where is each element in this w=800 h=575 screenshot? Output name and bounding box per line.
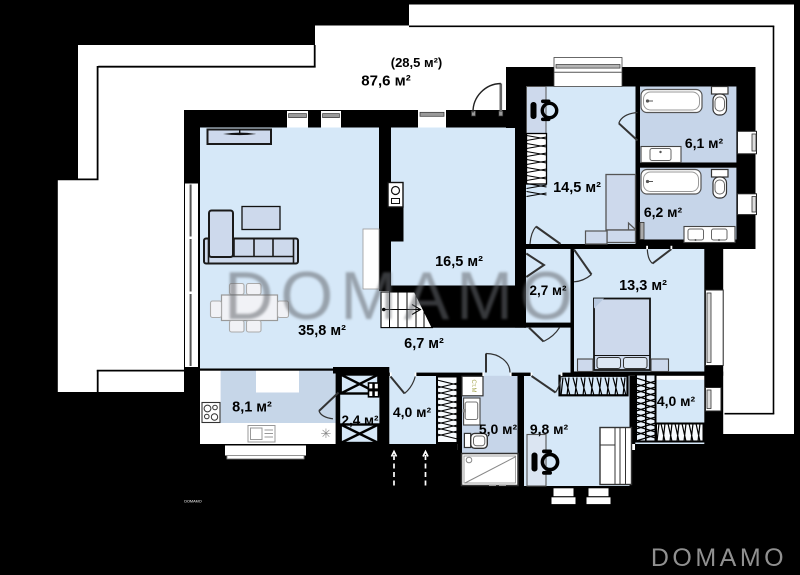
svg-text:6,1 м²: 6,1 м² xyxy=(685,135,724,151)
svg-text:6,2 м²: 6,2 м² xyxy=(644,204,683,220)
svg-text:14,5 м²: 14,5 м² xyxy=(553,180,601,196)
svg-text:2,7 м²: 2,7 м² xyxy=(530,283,568,298)
svg-text:9,8 м²: 9,8 м² xyxy=(530,421,569,437)
svg-text:16,5 м²: 16,5 м² xyxy=(435,254,483,270)
svg-text:✳: ✳ xyxy=(321,426,332,441)
svg-text:DOMAMO: DOMAMO xyxy=(224,258,580,334)
svg-text:4,0 м²: 4,0 м² xyxy=(657,393,696,409)
svg-text:35,8 м²: 35,8 м² xyxy=(298,323,346,339)
svg-text:2,4 м²: 2,4 м² xyxy=(342,413,380,428)
svg-text:DOMAMO: DOMAMO xyxy=(651,544,787,572)
svg-text:87,6 м²: 87,6 м² xyxy=(361,73,410,90)
svg-text:4,0 м²: 4,0 м² xyxy=(393,404,432,420)
svg-text:(28,5 м²): (28,5 м²) xyxy=(391,55,443,70)
svg-text:5,0 м²: 5,0 м² xyxy=(479,421,518,437)
svg-text:DOMAMO: DOMAMO xyxy=(184,500,202,504)
svg-text:6,7 м²: 6,7 м² xyxy=(404,336,444,352)
svg-text:Ст.М: Ст.М xyxy=(470,379,476,392)
svg-text:8,1 м²: 8,1 м² xyxy=(232,400,272,416)
svg-text:13,3 м²: 13,3 м² xyxy=(619,278,667,294)
